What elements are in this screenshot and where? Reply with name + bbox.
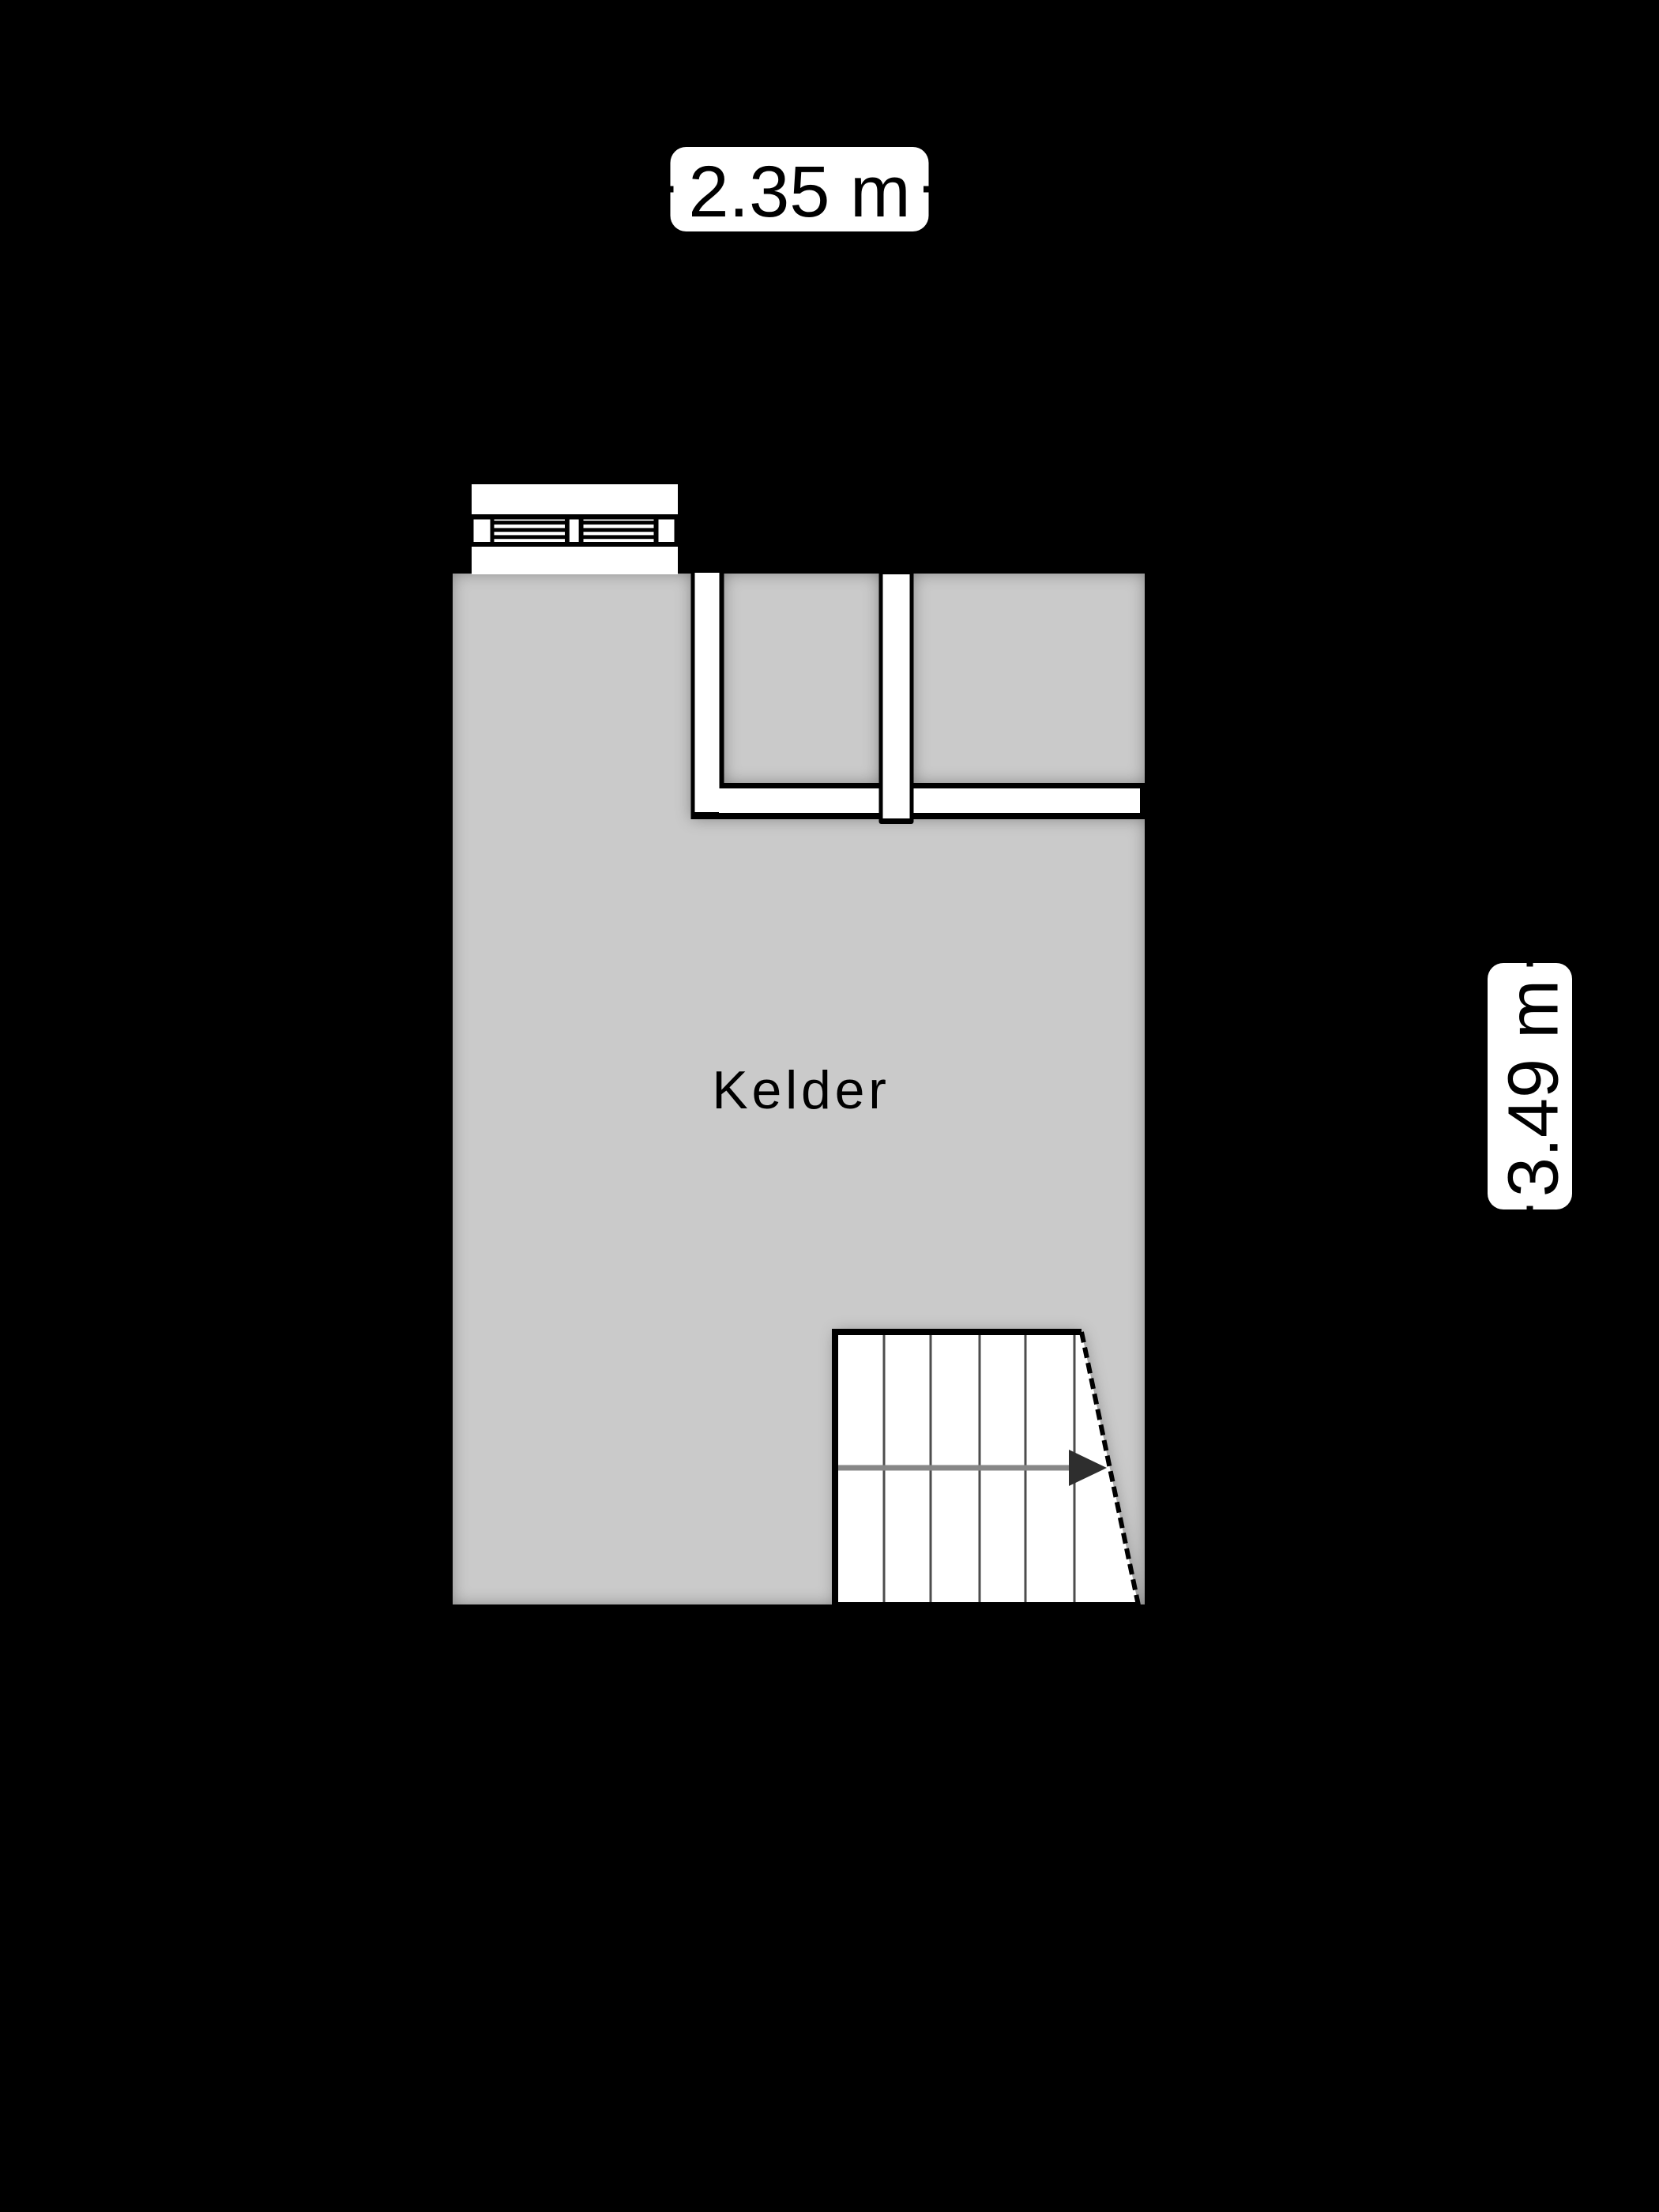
svg-text:3.49 m: 3.49 m bbox=[1495, 980, 1574, 1197]
svg-text:Kelder: Kelder bbox=[712, 1060, 890, 1120]
svg-text:2.35 m: 2.35 m bbox=[688, 152, 910, 232]
